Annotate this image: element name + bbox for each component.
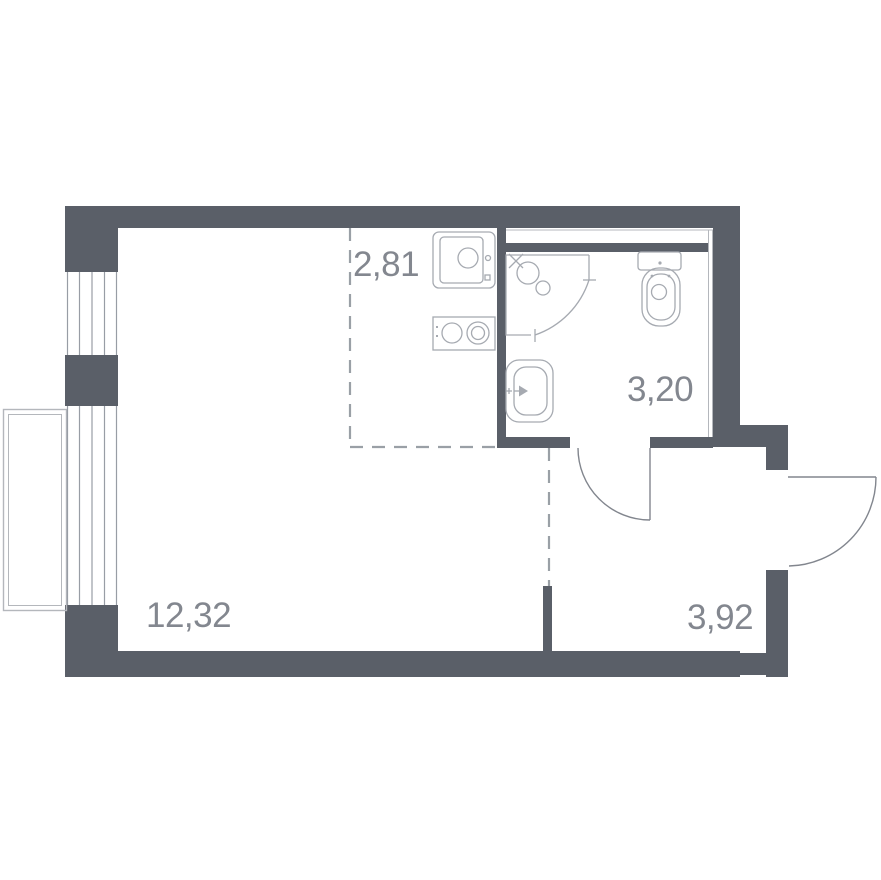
balcony bbox=[4, 410, 67, 611]
bathroom-area-label: 3,20 bbox=[620, 372, 700, 407]
entry-door bbox=[788, 477, 876, 566]
kitchen-area-label: 2,81 bbox=[346, 247, 426, 282]
window-balcony bbox=[68, 406, 117, 605]
hallway-area-label: 3,92 bbox=[679, 600, 761, 635]
window-upper bbox=[68, 272, 117, 355]
floor-plan: 2,81 3,20 12,32 3,92 bbox=[0, 0, 881, 880]
bathroom-door bbox=[578, 448, 650, 520]
stove bbox=[433, 317, 495, 350]
washbasin bbox=[506, 360, 553, 422]
plan-linework bbox=[0, 0, 881, 880]
main-room-area-label: 12,32 bbox=[146, 598, 228, 633]
kitchen-sink bbox=[433, 232, 495, 288]
toilet bbox=[638, 252, 681, 326]
shower bbox=[506, 254, 596, 342]
